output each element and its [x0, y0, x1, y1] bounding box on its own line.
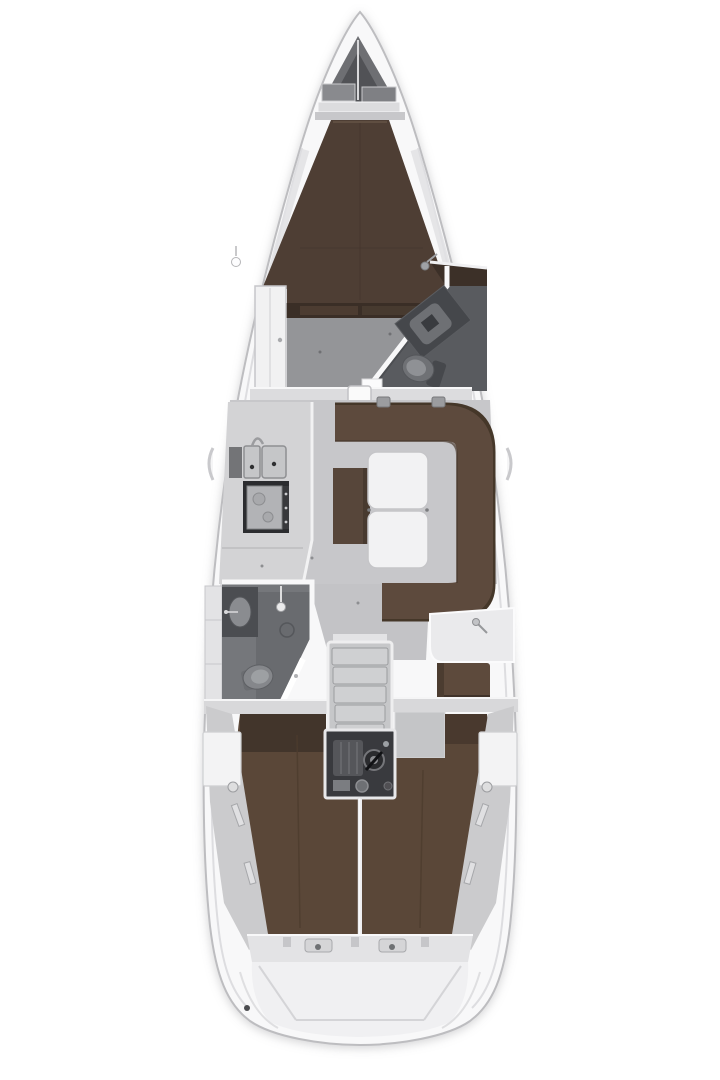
wardrobe-knob	[278, 338, 282, 342]
chart-table	[430, 608, 514, 662]
engine-part	[333, 780, 350, 791]
galley	[219, 402, 312, 584]
floor-dot	[319, 351, 322, 354]
shelf-inset-1	[300, 306, 358, 315]
stove-top	[247, 486, 282, 529]
locker-shelf-starboard	[362, 87, 396, 103]
cabinet-knob	[261, 565, 264, 568]
bow-bulkhead	[318, 102, 400, 112]
locker-cabinet-starboard	[479, 732, 517, 786]
hatch-clip-2	[432, 397, 445, 407]
berth-headboard	[315, 112, 405, 120]
showerhead-icon	[277, 603, 286, 612]
side-lockers	[205, 586, 222, 708]
engine-fitting	[384, 782, 392, 790]
stair-tread-3	[334, 686, 386, 703]
stair-tread-1	[332, 648, 388, 665]
stern	[240, 935, 480, 1037]
stair-tread-4	[335, 705, 385, 722]
step-notch	[283, 937, 291, 947]
sink-small	[244, 446, 260, 478]
step-notch	[421, 937, 429, 947]
berth-divider-wall	[358, 798, 361, 938]
hatch-clip-1	[377, 397, 390, 407]
cabinet-knob-port	[228, 782, 238, 792]
burner-2	[263, 512, 273, 522]
sink-drain-2	[272, 462, 276, 466]
locker-cabinet-port	[203, 732, 241, 786]
cockpit-sole	[252, 962, 468, 1037]
table-hinge-1	[367, 508, 371, 512]
chart-lamp-icon	[473, 619, 480, 626]
locker-shelf-port	[322, 84, 355, 101]
step-notch	[351, 937, 359, 947]
transom-step	[247, 935, 473, 962]
table-leaf-forward	[368, 452, 428, 509]
engine-filter	[356, 780, 368, 792]
cabinet-knob-starboard	[482, 782, 492, 792]
aft-bulkhead-starboard	[390, 698, 518, 712]
gimbal-dot	[285, 493, 288, 496]
table-hinge-2	[425, 508, 429, 512]
table-leaf-aft	[368, 511, 428, 568]
drain-fitting	[244, 1005, 250, 1011]
door-handle	[294, 674, 298, 678]
engine-cap	[383, 741, 389, 747]
chainplate-starboard	[507, 448, 511, 480]
sink-drain-1	[250, 465, 254, 469]
drainer	[229, 447, 242, 478]
gimbal-dot	[285, 507, 288, 510]
latch-dot	[315, 944, 321, 950]
engine-block	[333, 740, 363, 776]
floorplan-svg	[0, 0, 720, 1080]
latch-dot	[389, 944, 395, 950]
berth-step-starboard	[395, 712, 445, 758]
burner-1	[253, 493, 265, 505]
companionway	[328, 634, 392, 738]
shower-mixer-icon	[421, 262, 429, 270]
floor-dot	[389, 333, 392, 336]
deck-fitting-port	[232, 258, 241, 267]
chainplate-port	[209, 448, 213, 480]
stair-tread-2	[333, 667, 387, 684]
berth-shadow-port	[240, 714, 326, 752]
yacht-floorplan	[0, 0, 720, 1080]
faucet-base	[224, 610, 228, 614]
gimbal-dot	[285, 521, 288, 524]
